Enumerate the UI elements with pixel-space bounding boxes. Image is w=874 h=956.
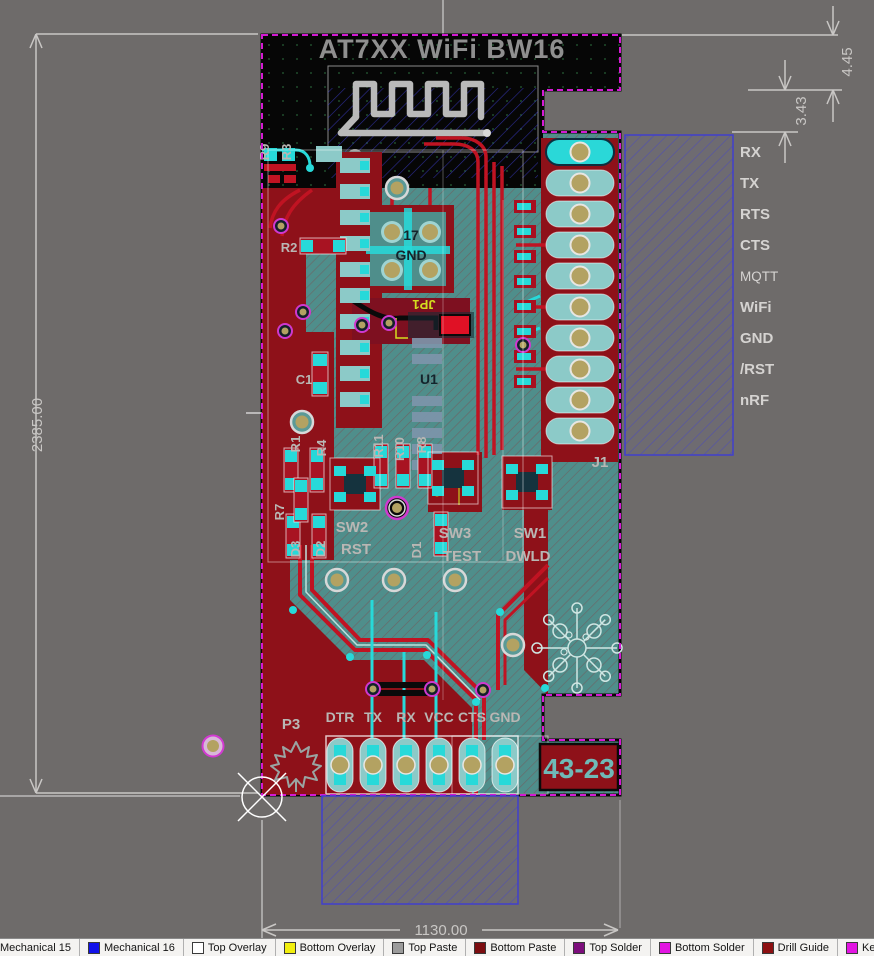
switch-pad xyxy=(506,490,518,500)
pcb-editor-canvas: AT7XX WiFi BW16 xyxy=(0,0,874,955)
layer-color-swatch xyxy=(284,942,296,954)
j1-pad-hole xyxy=(571,205,590,224)
switch-body xyxy=(442,468,464,488)
smd-pad[interactable] xyxy=(517,278,531,285)
layer-tab-top-paste[interactable]: Top Paste xyxy=(384,939,466,956)
refdes-r9: R9 xyxy=(257,144,272,161)
pin-label-mqtt: MQTT xyxy=(740,269,778,284)
refdes-r11: R11 xyxy=(371,434,386,457)
p3-pad-hole xyxy=(364,756,382,774)
dim-notch-height: 3.43 xyxy=(793,96,810,125)
pin-label-rts: RTS xyxy=(740,206,770,223)
p3-pin-label-cts: CTS xyxy=(458,709,486,725)
sw3-function: TEST xyxy=(443,548,481,565)
part-pad xyxy=(311,478,323,490)
hole-center xyxy=(391,182,404,195)
layer-tab-label: Top Solder xyxy=(589,942,642,954)
refdes-r1: R1 xyxy=(288,436,303,453)
via-hole xyxy=(300,309,307,316)
j1-courtyard xyxy=(625,135,733,455)
layer-tab-label: Bottom Paste xyxy=(490,942,556,954)
pin-label-wifi: WiFi xyxy=(740,299,772,316)
layer-tab-label: Mechanical 16 xyxy=(104,942,175,954)
connector-pad-paste xyxy=(360,369,369,378)
via-hole xyxy=(282,328,289,335)
refdes-c1: C1 xyxy=(296,372,313,387)
connector-pad-paste xyxy=(360,239,369,248)
switch-pad xyxy=(506,464,518,474)
smd-pad[interactable] xyxy=(517,353,531,360)
layer-tab-kee[interactable]: Kee xyxy=(838,939,874,956)
sw1-function: DWLD xyxy=(506,548,551,565)
layer-tab-label: Drill Guide xyxy=(778,942,829,954)
layer-color-swatch xyxy=(659,942,671,954)
part-pad xyxy=(333,240,345,252)
switch-pad xyxy=(462,486,474,496)
j1-pad-hole xyxy=(571,422,590,441)
board-title: AT7XX WiFi BW16 xyxy=(319,34,566,64)
p3-pin-label-tx: TX xyxy=(364,709,383,725)
refdes-j1: J1 xyxy=(592,454,609,471)
dim-board-height: 2385.00 xyxy=(29,398,46,452)
u1-pad[interactable] xyxy=(412,428,442,438)
p3-pad-hole xyxy=(430,756,448,774)
p3-courtyard xyxy=(322,796,518,904)
p3-pad-hole xyxy=(496,756,514,774)
switch-pad xyxy=(432,460,444,470)
pcb-board[interactable]: AT7XX WiFi BW16 xyxy=(246,34,622,795)
j1-pad-hole xyxy=(571,267,590,286)
layer-tab-label: Kee xyxy=(862,942,874,954)
layer-color-swatch xyxy=(474,942,486,954)
gnd-pad-block[interactable]: 17 GND xyxy=(366,208,450,290)
layer-tab-mechanical-16[interactable]: Mechanical 16 xyxy=(80,939,184,956)
layer-tab-bar: Mechanical 15Mechanical 16Top OverlayBot… xyxy=(0,938,874,956)
switch-body xyxy=(344,474,366,494)
connector-pad-paste xyxy=(360,343,369,352)
refdes-d3: D3 xyxy=(288,541,303,558)
refdes-r8: R8 xyxy=(414,437,429,454)
refdes-sw1: SW1 xyxy=(514,525,547,542)
switch-body xyxy=(516,472,538,492)
connector-pad-paste xyxy=(360,265,369,274)
board-code: 43-23 xyxy=(543,753,615,784)
j1-pad-hole xyxy=(571,174,590,193)
u1-pad[interactable] xyxy=(412,396,442,406)
layer-tab-drill-guide[interactable]: Drill Guide xyxy=(754,939,838,956)
pad17-net: GND xyxy=(395,247,426,263)
smd-pad[interactable] xyxy=(517,203,531,210)
j1-pad-hole xyxy=(571,391,590,410)
smd-pad[interactable] xyxy=(517,328,531,335)
refdes-sw2: SW2 xyxy=(336,519,369,536)
smd-pad[interactable] xyxy=(517,253,531,260)
layer-color-swatch xyxy=(88,942,100,954)
connector-pad-paste xyxy=(360,291,369,300)
layer-tab-top-overlay[interactable]: Top Overlay xyxy=(184,939,276,956)
j1-pad-hole xyxy=(571,329,590,348)
layer-tab-label: Bottom Overlay xyxy=(300,942,376,954)
j1-pad-hole xyxy=(571,143,590,162)
hole-center xyxy=(388,574,401,587)
via-hole xyxy=(278,223,285,230)
switch-pad xyxy=(462,460,474,470)
via-hole xyxy=(429,686,436,693)
connector-pad-paste xyxy=(360,161,369,170)
u1-pad[interactable] xyxy=(412,338,442,348)
layer-color-swatch xyxy=(573,942,585,954)
p3-pin-label-rx: RX xyxy=(396,709,416,725)
dim-notch-offset: 4.45 xyxy=(839,47,856,76)
via-hole xyxy=(386,320,393,327)
hole-center xyxy=(296,416,309,429)
u1-pad[interactable] xyxy=(412,412,442,422)
part-pad xyxy=(419,474,431,486)
layer-tab-label: Bottom Solder xyxy=(675,942,745,954)
pin-label-tx: TX xyxy=(740,175,759,192)
smd-pad[interactable] xyxy=(517,228,531,235)
refdes-p3: P3 xyxy=(282,716,300,733)
u1-pad[interactable] xyxy=(412,354,442,364)
layer-color-swatch xyxy=(762,942,774,954)
pin-label-rst: /RST xyxy=(740,361,774,378)
free-via[interactable] xyxy=(203,736,224,757)
refdes-jp1: JP1 xyxy=(412,297,435,312)
p3-pad-hole xyxy=(331,756,349,774)
p3-pin-label-dtr: DTR xyxy=(326,709,355,725)
pin-label-cts: CTS xyxy=(740,237,770,254)
refdes-d2: D2 xyxy=(313,541,328,558)
connector-pad-paste xyxy=(360,395,369,404)
via-hole xyxy=(370,686,377,693)
switch-pad xyxy=(536,490,548,500)
layer-tab-bottom-solder[interactable]: Bottom Solder xyxy=(651,939,754,956)
p3-pin-label-vcc: VCC xyxy=(424,709,454,725)
p3-pad-hole xyxy=(397,756,415,774)
switch-pad xyxy=(432,486,444,496)
refdes-sw3: SW3 xyxy=(439,525,472,542)
part-pad xyxy=(375,474,387,486)
layer-color-swatch xyxy=(192,942,204,954)
pad17-number: 17 xyxy=(403,227,419,243)
switch-pad xyxy=(364,466,376,476)
pin-label-gnd: GND xyxy=(740,330,774,347)
part-pad xyxy=(295,480,307,492)
refdes-u1: U1 xyxy=(420,371,438,387)
layer-tab-bottom-paste[interactable]: Bottom Paste xyxy=(466,939,565,956)
switch-pad xyxy=(334,492,346,502)
layer-color-swatch xyxy=(392,942,404,954)
refdes-r7: R7 xyxy=(272,504,287,521)
refdes-r2: R2 xyxy=(281,240,298,255)
smd-pad[interactable] xyxy=(517,378,531,385)
part-pad xyxy=(301,240,313,252)
layer-tab-label: Top Paste xyxy=(408,942,457,954)
dim-board-width: 1130.00 xyxy=(414,922,467,939)
part-pad xyxy=(313,382,327,394)
refdes-r3: R3 xyxy=(279,144,294,161)
connector-pad-paste xyxy=(360,187,369,196)
layer-tab-mechanical-15[interactable]: Mechanical 15 xyxy=(0,939,80,956)
smd-pad[interactable] xyxy=(517,303,531,310)
switch-pad xyxy=(334,466,346,476)
hole-center xyxy=(449,574,462,587)
refdes-r10: R10 xyxy=(392,437,407,461)
part-pad xyxy=(397,474,409,486)
layer-tab-label: Mechanical 15 xyxy=(0,942,71,954)
j1-pad-hole xyxy=(571,298,590,317)
pin-label-rx: RX xyxy=(740,144,761,161)
switch-pad xyxy=(364,492,376,502)
refdes-d1: D1 xyxy=(409,542,424,559)
layer-tab-top-solder[interactable]: Top Solder xyxy=(565,939,651,956)
j1-pad-hole xyxy=(571,360,590,379)
p3-pad-hole xyxy=(463,756,481,774)
connector-pad-paste xyxy=(360,213,369,222)
via-hole xyxy=(480,687,487,694)
layer-tab-label: Top Overlay xyxy=(208,942,267,954)
j1-pad-hole xyxy=(571,236,590,255)
part-pad xyxy=(313,516,325,528)
hole-center xyxy=(507,639,520,652)
via-hole xyxy=(359,322,366,329)
layer-color-swatch xyxy=(846,942,858,954)
part-pad xyxy=(295,508,307,520)
sw2-function: RST xyxy=(341,541,371,558)
pin-label-nrf: nRF xyxy=(740,392,769,409)
refdes-r4: R4 xyxy=(314,439,329,456)
part-pad xyxy=(313,354,327,366)
hole-center xyxy=(331,574,344,587)
board-code-block: 43-23 xyxy=(540,744,618,790)
p3-pin-label-gnd: GND xyxy=(489,709,520,725)
antenna-feed-dot xyxy=(483,129,491,137)
layer-tab-bottom-overlay[interactable]: Bottom Overlay xyxy=(276,939,385,956)
switch-pad xyxy=(536,464,548,474)
via-hole xyxy=(392,503,402,513)
